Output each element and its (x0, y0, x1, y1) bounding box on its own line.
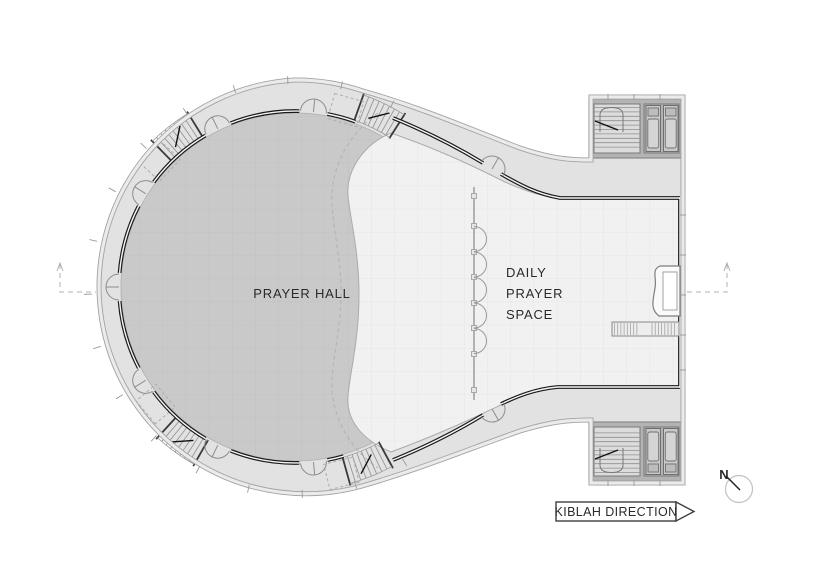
svg-text:PRAYER: PRAYER (506, 286, 563, 301)
kiblah-arrow-icon (676, 502, 694, 521)
mihrab-steps (612, 322, 679, 336)
north-needle-icon (726, 476, 740, 490)
kiblah-direction-banner: KIBLAH DIRECTION (554, 502, 694, 521)
mihrab-inner (663, 272, 677, 310)
axis-marker-right (686, 263, 730, 292)
axis-marker-left (57, 263, 96, 292)
svg-text:DAILY: DAILY (506, 265, 547, 280)
floor-plan-canvas: PRAYER HALL DAILY PRAYER SPACE KIBLAH DI… (0, 0, 818, 578)
north-label: N (719, 467, 728, 482)
kiblah-direction-label: KIBLAH DIRECTION (554, 505, 677, 519)
north-compass-icon: N (719, 467, 752, 503)
service-block-bottom (589, 422, 681, 481)
prayer-hall-label: PRAYER HALL (253, 286, 350, 301)
service-block-top (589, 99, 681, 158)
svg-text:SPACE: SPACE (506, 307, 553, 322)
floor-plan-drawing: PRAYER HALL DAILY PRAYER SPACE KIBLAH DI… (0, 0, 818, 578)
